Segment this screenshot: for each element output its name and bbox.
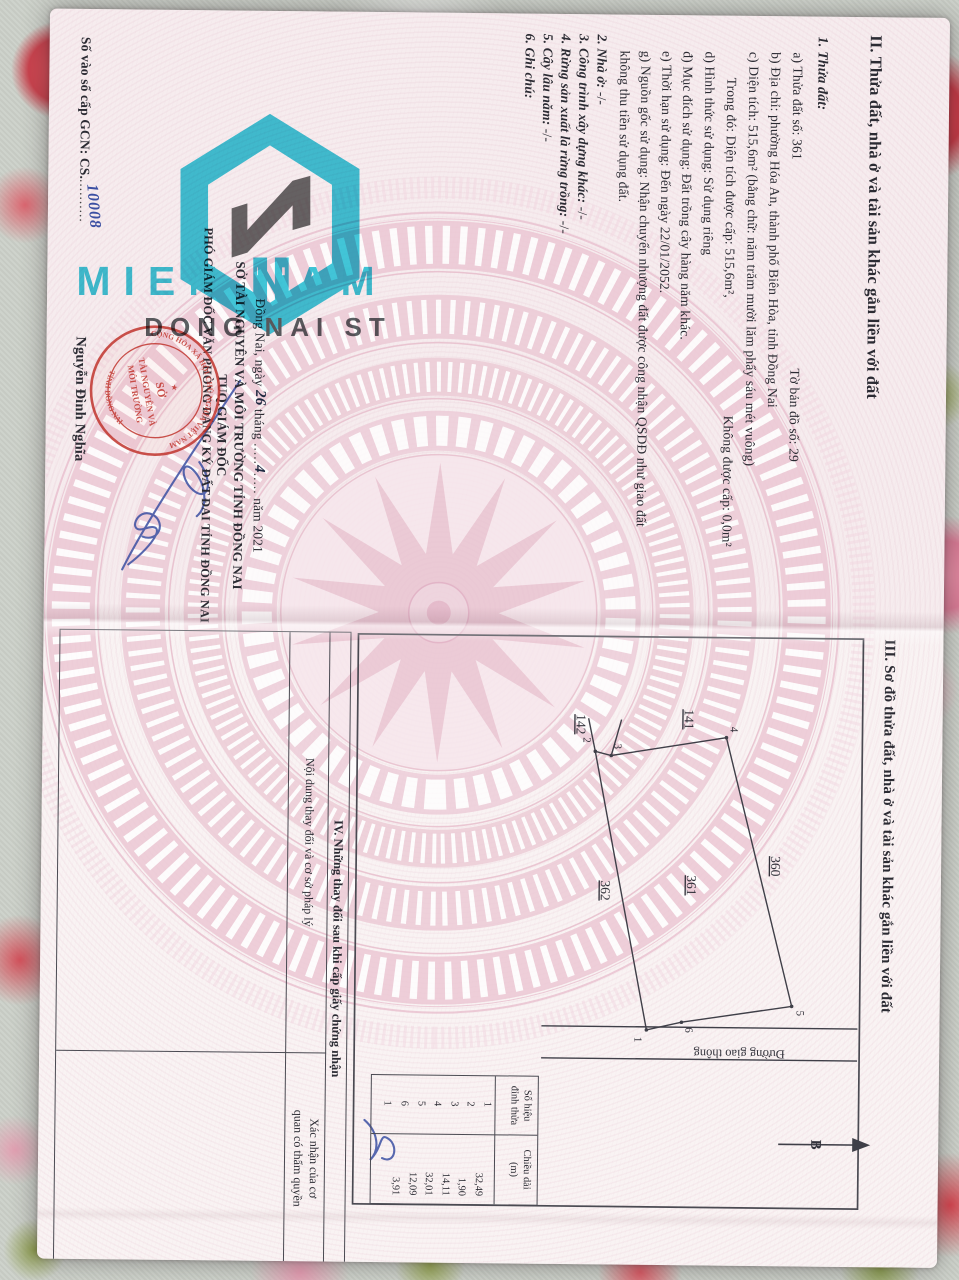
item-4-line: 4. Rừng sản xuất là rừng trồng: -/-	[556, 34, 574, 234]
watermark-title: MIEN NAM	[62, 258, 402, 305]
item-4-label: 4. Rừng sản xuất là rừng trồng:	[557, 34, 574, 217]
vertex-length-table: Số hiệu đỉnh thửa Chiều dài (m) 1 2 3 4 …	[370, 1074, 539, 1206]
confirm-header-line1: Xác nhận của cơ	[304, 1054, 322, 1262]
date-month-handwritten: 4	[251, 465, 267, 473]
vertex-label-5: 5	[794, 1010, 806, 1016]
vertex-label-6: 6	[682, 1027, 694, 1033]
date-month-word: tháng	[252, 409, 267, 440]
col1-header-line2: đỉnh thửa	[507, 1076, 521, 1134]
vertex-label-2: 2	[580, 737, 592, 743]
vertex-label-4: 4	[728, 727, 740, 733]
vertex-id: 3	[448, 1076, 460, 1132]
road-edge-line-1	[541, 1026, 857, 1029]
item-6-label: 6. Ghi chú:	[521, 34, 538, 99]
plot-label-360: 360	[768, 856, 783, 877]
col1-header-line1: Số hiệu	[520, 1077, 534, 1135]
item-4-value: -/-	[557, 221, 572, 234]
edge-length: 32,49	[473, 1138, 485, 1196]
watermark-subtitle: DONG NAI ST	[118, 312, 418, 343]
item-3-value: -/-	[575, 207, 590, 220]
north-label: B	[807, 1140, 823, 1150]
section-2-title: II. Thửa đất, nhà ở và tài sản khác gắn …	[862, 35, 886, 399]
edge-length: 14,11	[439, 1138, 451, 1196]
plot-label-362: 362	[598, 880, 613, 900]
use-purpose-line: đ) Mục đích sử dụng: Đất trồng cây hàng …	[677, 51, 696, 340]
use-term-line: e) Thời hạn sử dụng: Đến ngày 22/01/2052…	[656, 51, 675, 293]
edge-length: 12,09	[406, 1137, 418, 1195]
vertex-label-3: 3	[611, 743, 623, 749]
col2-header-line2: (m)	[507, 1136, 521, 1202]
item-5-value: -/-	[540, 129, 555, 142]
date-dots: .....	[251, 443, 266, 465]
plot-label-141: 141	[682, 709, 697, 729]
item-2-label: 2. Nhà ở:	[594, 34, 610, 88]
item-3-line: 3. Công trình xây dựng khác: -/-	[574, 34, 592, 220]
area-granted-line: Trong đó: Diện tích được cấp: 515,6m²,	[721, 78, 739, 298]
section-4-changes-table: IV. Những thay đổi sau khi cấp giấy chứn…	[53, 629, 352, 1266]
origin-line-2: không thu tiền sử dụng đất.	[615, 51, 633, 203]
date-year: năm 2021	[250, 498, 266, 553]
vertex-id: 6	[398, 1075, 410, 1131]
hexagon-building-logo	[165, 110, 375, 346]
edge-length: 1,90	[456, 1138, 468, 1196]
col2-header: Chiều dài (m)	[507, 1136, 534, 1202]
vertex-id: 1	[382, 1075, 394, 1131]
confirm-header-line2: quan có thẩm quyền	[289, 1054, 307, 1262]
item-5-label: 5. Cây lâu năm:	[540, 34, 556, 126]
edge-length: 32,01	[423, 1138, 435, 1196]
logo-n-glyph	[232, 176, 311, 258]
col1-header: Số hiệu đỉnh thửa	[507, 1076, 534, 1134]
north-arrow-head	[852, 1138, 870, 1152]
vertex-id: 5	[415, 1075, 427, 1131]
agency-watermark: MIEN NAM DONG NAI ST	[0, 0, 420, 400]
use-form-line: d) Hình thức sử dụng: Sử dụng riêng	[700, 51, 718, 255]
item-5-line: 5. Cây lâu năm: -/-	[539, 34, 556, 142]
area-notgranted-line: Không được cấp: 0,0m²	[718, 416, 735, 547]
item-2-value: -/-	[594, 92, 609, 105]
vertex-label-1: 1	[631, 1037, 643, 1043]
road-label: Đường giao thông	[693, 1046, 785, 1061]
confirm-column-header: Xác nhận của cơ quan có thẩm quyền	[289, 1054, 322, 1262]
edge-length: 3,91	[390, 1137, 402, 1195]
plot-label-142: 142	[573, 714, 588, 734]
item-3-label: 3. Công trình xây dựng khác:	[575, 34, 592, 203]
vertex-id: 2	[465, 1076, 477, 1132]
parcel-number-line: a) Thửa đất số: 361	[789, 52, 806, 160]
date-dots: .....	[251, 473, 266, 495]
map-sheet-line: Tờ bản đồ số: 29	[785, 368, 802, 462]
vertex-id: 1	[481, 1076, 493, 1132]
item-2-line: 2. Nhà ở: -/-	[593, 34, 610, 105]
photo-of-land-certificate: 1 2 3 4 5 6 141 142 360 361 362 Đường gi…	[0, 0, 959, 1280]
vertex-id: 4	[432, 1076, 444, 1132]
item-1-label: 1. Thửa đất:	[813, 37, 830, 111]
col2-header-line1: Chiều dài	[520, 1137, 534, 1203]
plot-label-361: 361	[684, 875, 699, 895]
